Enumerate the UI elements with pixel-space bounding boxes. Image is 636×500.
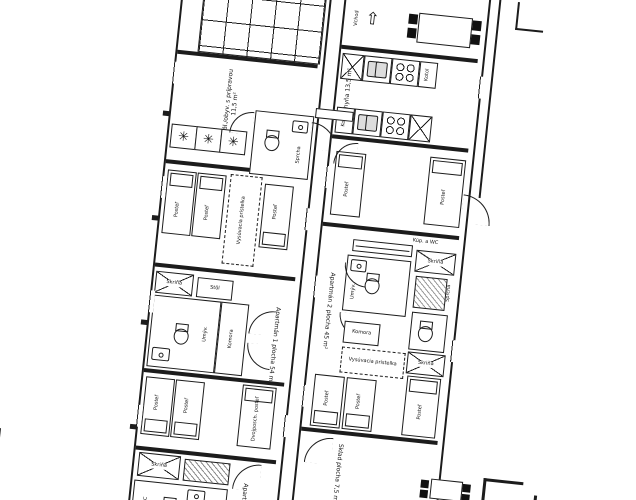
dining-table [429,479,463,500]
bathroom-wc-label: Kúp. a WC [412,238,438,246]
bunk-bed-label: Dvojposch. posteľ [251,396,261,441]
pantry-box: Komora [214,302,249,377]
pantry-label: Komora [228,329,236,349]
window [476,76,485,99]
window [300,384,309,407]
bed-label: Posteľ [174,202,181,218]
bed: Posteľ [310,374,345,429]
star-glyph: ✳ [227,134,239,150]
wardrobe-label: Skriňa [165,280,183,288]
chair-icon [462,484,471,493]
bed: Posteľ [423,157,466,228]
wardrobe-label: Skriňa [426,259,444,267]
dining-table [416,13,473,48]
window [302,208,311,231]
chair-icon [407,28,417,39]
extra-bed-label: Vysúvacia prístelka [348,357,397,368]
sink-icon [151,347,170,362]
toilet-bowl [264,134,281,151]
window [170,61,179,84]
facade-post [163,111,170,117]
toilet-icon [417,320,434,342]
bed-pillow [345,413,370,428]
kitchen-sink-icon [352,109,383,138]
wardrobe-label: Skriňa [150,462,168,470]
chair-icon [470,34,480,45]
bed-pillow [262,232,286,247]
star-glyph: ✳ [202,131,214,147]
bed-label: Posteľ [344,181,351,197]
bed-pillow [169,173,193,188]
neighbor-unit [400,452,587,500]
window [448,340,457,363]
star-glyph: ✳ [177,129,189,145]
wardrobe-label: Skriňa [417,361,435,369]
door-arc-icon [461,194,493,226]
stove-icon [390,58,421,87]
bed-pillow [432,160,463,176]
stove-icon [380,111,411,140]
bed-pillow [173,421,197,436]
bed: Posteľ [191,173,227,240]
wardrobe-icon: Skriňa [406,351,446,377]
wall [529,495,537,500]
door-arc-icon [333,141,358,166]
bed-label: Posteľ [273,204,280,220]
bed-label: Posteľ [417,404,424,420]
entrance-arrow-icon: ⇧ [364,11,380,29]
hob-icon: ✳ [169,124,197,151]
bed-pillow [144,418,168,433]
toilet-bowl [364,278,381,295]
neighbor-wall-fragment [0,428,1,500]
apartment-2-label: Apartmán 2 plocha 45 m² [320,272,335,349]
shower-label: Sprcha [445,284,453,302]
entrance-label: Vchod [354,10,361,26]
chair-icon [472,20,482,31]
toilet-bowl [173,328,190,345]
bed-label: Posteľ [356,394,363,410]
kitchen-counter-icon [183,459,231,486]
boiler-label: Kotol [424,68,431,81]
door-arc-icon [304,435,334,465]
fridge-icon [408,114,433,142]
bunk-bed: Dvojposch. posteľ [236,384,276,449]
chair-icon [419,489,428,498]
bed: Posteľ [401,375,441,438]
bench-icon [352,239,413,257]
facade-post [130,424,137,430]
chair-icon [461,494,470,500]
extra-bed-label: Vysúvacia prístelka [237,196,248,245]
shower-icon [413,276,448,311]
bed-label: Posteľ [184,398,191,414]
wall [477,478,486,500]
window [311,275,320,298]
extra-bed-dashed: Vysúvacia prístelka [339,346,405,379]
sink-icon [186,489,205,500]
toilet-bowl [417,325,434,342]
floor-plan-canvas: Spál./obyv. s prípravou 11,5 m² ✳ ✳ ✳ Sp… [0,0,636,500]
chair-icon [420,480,429,489]
table-box: Stôl [196,277,234,301]
extra-bed-dashed: Vysúvacia prístelka [221,174,262,267]
neighbor-corner [515,2,546,33]
pantry-box: Komora [343,321,381,347]
bed: Posteľ [140,376,175,437]
bed-label: Posteľ [441,189,448,205]
window [323,166,332,189]
wall [483,478,523,485]
bed-pillow [199,176,223,191]
wc-label: WC [143,496,150,500]
bed: Posteľ [170,379,205,440]
facade-post [152,215,159,221]
storage-label: Sklad plocha 7,5 m² [330,443,343,500]
table-label: Stôl [210,286,220,293]
window [281,415,290,438]
bed: Posteľ [341,377,376,432]
pantry-label: Komora [352,330,372,338]
bed-pillow [313,410,338,425]
chair-icon [408,14,418,25]
hob-icon: ✳ [194,126,222,153]
facade-post [141,319,148,325]
boiler-box: Kotol [418,61,439,89]
toilet-icon [161,497,178,500]
bed-pillow [409,379,438,395]
sink-icon [292,120,309,134]
toilet-icon [264,129,281,151]
wardrobe-icon: Skriňa [154,271,194,297]
bed-label: Posteľ [154,395,161,411]
wardrobe-icon: Skriňa [137,452,181,480]
bed-label: Posteľ [324,390,331,406]
kitchen-sink-icon [362,55,393,84]
wardrobe-icon: Skriňa [414,250,456,276]
bed-label: Posteľ [204,205,211,221]
bed: Posteľ [258,184,294,251]
toilet-icon [173,323,190,345]
